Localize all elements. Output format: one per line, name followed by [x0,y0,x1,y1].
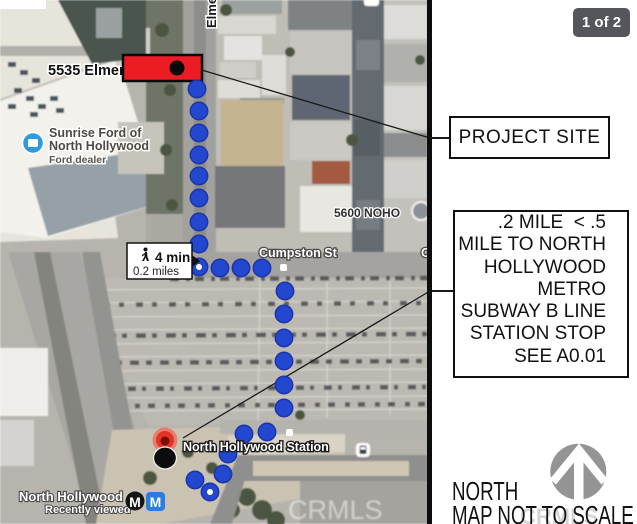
svg-text:5600 NOHO: 5600 NOHO [334,206,400,220]
svg-text:Elmer Ave: Elmer Ave [204,0,219,28]
svg-text:0.2 miles: 0.2 miles [133,266,179,278]
svg-text:North Hollywood Station: North Hollywood Station [183,440,329,454]
svg-text:Sunrise Ford of: Sunrise Ford of [49,126,142,140]
svg-text:Recently viewed: Recently viewed [45,504,131,516]
svg-text:North Hollywood: North Hollywood [49,139,149,153]
svg-text:North Hollywood: North Hollywood [19,489,123,504]
svg-text:Cumpston St: Cumpston St [259,246,338,260]
svg-text:M: M [150,494,162,510]
svg-text:M: M [129,494,141,510]
svg-text:CRMLS: CRMLS [288,495,383,524]
svg-text:Ford dealer: Ford dealer [49,154,106,166]
svg-text:4 min: 4 min [155,250,190,265]
